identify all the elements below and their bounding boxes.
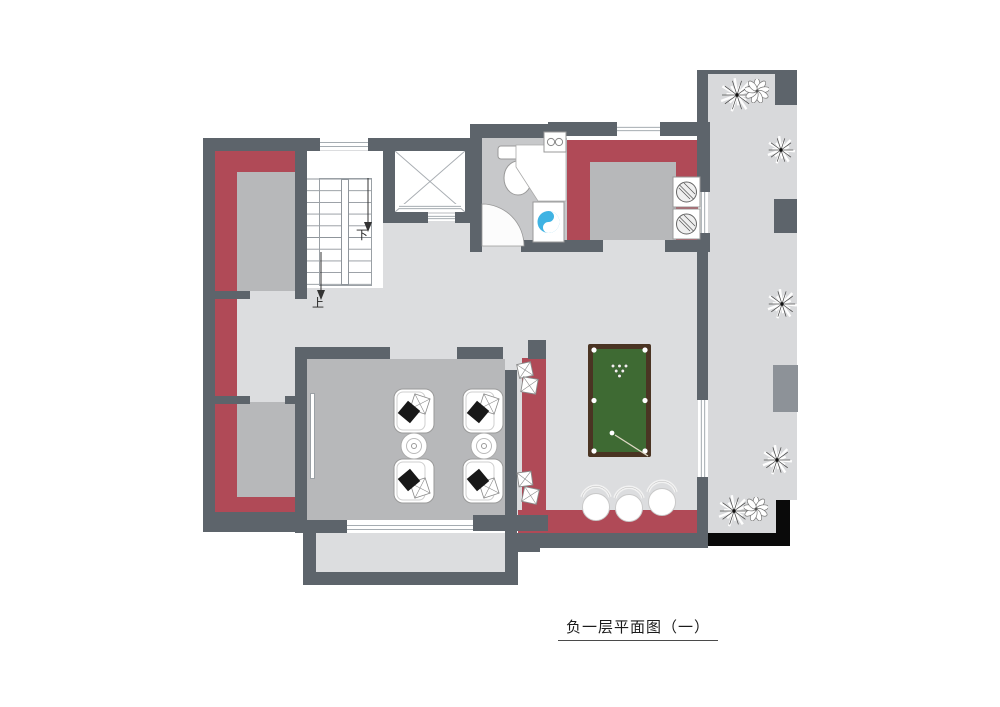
- wall-segment: [295, 138, 307, 299]
- red-wall-segment: [215, 150, 237, 512]
- wall-segment: [383, 212, 428, 223]
- plant-icon: [767, 136, 795, 164]
- wall-segment: [457, 347, 503, 359]
- flower-icon: [744, 497, 768, 521]
- red-wall-segment: [215, 150, 297, 172]
- wall-segment: [203, 138, 215, 532]
- wall-segment: [697, 252, 708, 400]
- wall-segment: [205, 396, 250, 404]
- washing-machine: [532, 201, 566, 244]
- window: [399, 204, 461, 211]
- stair-up-label: 上: [312, 297, 324, 309]
- bar-stool: [612, 482, 646, 524]
- wall-segment: [505, 370, 517, 533]
- wall-segment: [303, 572, 518, 585]
- wall-segment: [473, 515, 548, 531]
- cushion: [520, 376, 540, 396]
- wall-segment: [775, 72, 797, 105]
- wall-segment: [528, 340, 546, 359]
- wall-segment: [697, 477, 708, 537]
- bar-stool: [579, 481, 613, 523]
- storeroom-upper-floor: [237, 172, 295, 291]
- plant-icon: [762, 445, 792, 475]
- window: [347, 522, 473, 533]
- window: [617, 124, 660, 134]
- stair-down-label: 下: [356, 229, 368, 241]
- wall-segment: [383, 138, 395, 223]
- cushion: [520, 485, 540, 505]
- armchair: [462, 388, 504, 434]
- wall-segment: [516, 533, 708, 548]
- pool-table: [588, 344, 651, 457]
- basin: [543, 131, 567, 153]
- side-table: [400, 432, 428, 460]
- wall-segment: [774, 199, 797, 233]
- wall-segment: [697, 70, 708, 124]
- bar-stool: [645, 476, 679, 518]
- armchair: [393, 458, 435, 504]
- elevator-cab: [395, 151, 465, 212]
- wall-segment: [205, 291, 250, 299]
- laundry-floor: [590, 162, 676, 240]
- wall-segment: [295, 347, 390, 359]
- window: [428, 214, 455, 221]
- plan-title: 负一层平面图（一）: [558, 616, 718, 641]
- window: [320, 139, 368, 150]
- armchair: [393, 388, 435, 434]
- wall-segment: [203, 512, 307, 532]
- side-table: [470, 432, 498, 460]
- flower-icon: [745, 79, 769, 103]
- storeroom-lower-floor: [237, 402, 295, 497]
- laundry-appliances: [672, 176, 701, 240]
- white-gap: [790, 500, 798, 546]
- wall-segment: [295, 347, 307, 533]
- plant-icon: [767, 289, 797, 319]
- black-wall-vertical: [776, 500, 790, 546]
- door-swing: [480, 202, 526, 248]
- pillar: [773, 365, 798, 412]
- armchair: [462, 458, 504, 504]
- floor-plan: 负一层平面图（一） 下 上: [0, 0, 1000, 707]
- red-wall-segment: [215, 497, 297, 513]
- window: [698, 400, 708, 477]
- projection-screen: [310, 393, 315, 479]
- bay-room-floor: [316, 533, 505, 574]
